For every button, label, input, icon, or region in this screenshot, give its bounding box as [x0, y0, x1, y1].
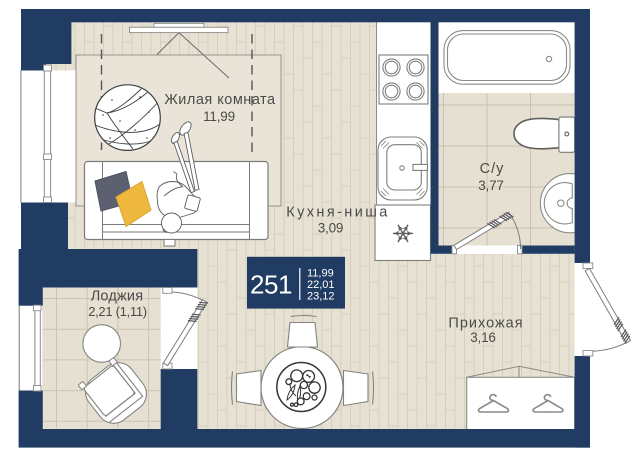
- svg-text:11,99: 11,99: [203, 109, 235, 124]
- svg-text:11,99: 11,99: [307, 268, 334, 280]
- svg-text:Жилая комната: Жилая комната: [164, 92, 276, 108]
- svg-text:3,16: 3,16: [470, 330, 495, 345]
- svg-text:3,77: 3,77: [478, 178, 503, 193]
- svg-text:3,09: 3,09: [318, 221, 343, 236]
- svg-text:22,01: 22,01: [307, 279, 335, 291]
- svg-text:Лоджия: Лоджия: [91, 289, 144, 305]
- svg-text:2,21 (1,11): 2,21 (1,11): [88, 304, 147, 319]
- svg-text:С/у: С/у: [480, 161, 505, 177]
- svg-text:Кухня-ниша: Кухня-ниша: [286, 205, 389, 221]
- svg-text:251: 251: [250, 270, 292, 300]
- svg-text:23,12: 23,12: [307, 291, 335, 303]
